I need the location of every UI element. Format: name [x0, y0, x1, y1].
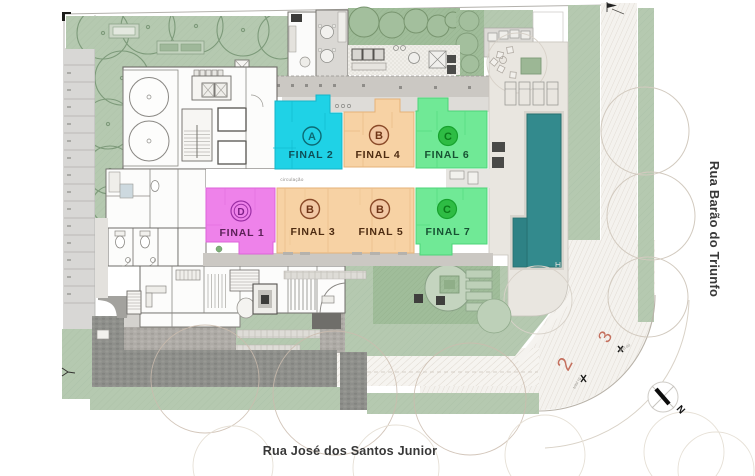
- svg-text:Rua Barão do Triunfo: Rua Barão do Triunfo: [707, 161, 722, 297]
- svg-text:FINAL 2: FINAL 2: [288, 149, 333, 161]
- svg-text:A: A: [308, 131, 316, 143]
- svg-text:C: C: [443, 204, 451, 216]
- svg-text:circulação: circulação: [280, 177, 303, 182]
- svg-text:FINAL 7: FINAL 7: [425, 226, 470, 238]
- svg-text:FINAL 6: FINAL 6: [424, 149, 469, 161]
- svg-text:FINAL 1: FINAL 1: [219, 227, 264, 239]
- svg-text:C: C: [444, 131, 452, 143]
- svg-text:D: D: [237, 207, 244, 218]
- svg-text:B: B: [306, 204, 314, 216]
- svg-text:Rua José dos Santos Junior: Rua José dos Santos Junior: [263, 444, 438, 458]
- svg-text:B: B: [376, 204, 384, 216]
- svg-text:B: B: [375, 130, 383, 142]
- svg-text:FINAL 5: FINAL 5: [358, 226, 403, 238]
- svg-text:FINAL 4: FINAL 4: [355, 149, 400, 161]
- svg-text:FINAL 3: FINAL 3: [290, 226, 335, 238]
